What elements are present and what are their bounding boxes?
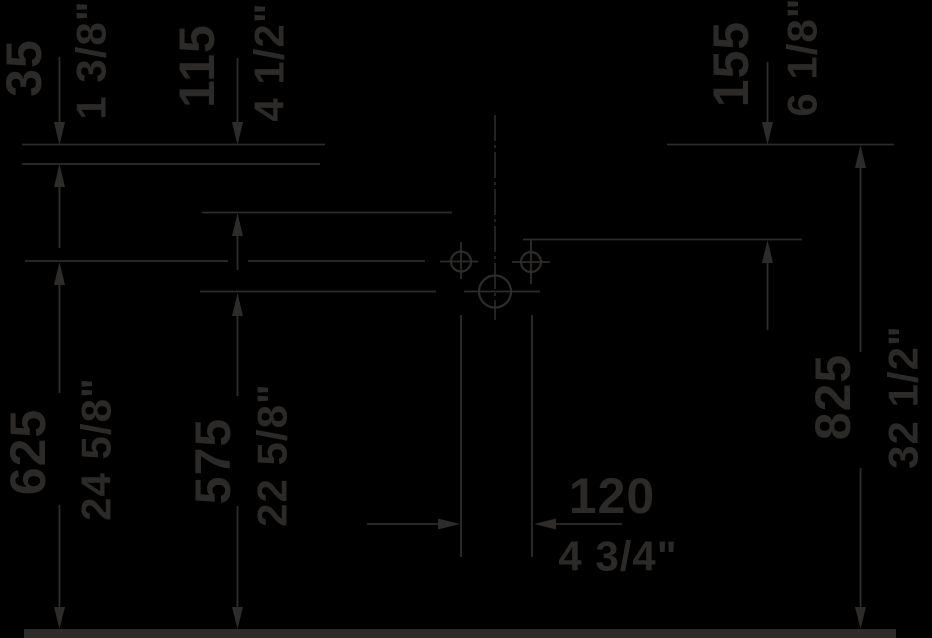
dimension-label-mm: 625: [0, 409, 56, 495]
dimension-label-mm: 120: [569, 468, 655, 524]
dimension-label-inch: 22 5/8": [249, 383, 296, 527]
arrowhead-down-icon: [54, 607, 65, 629]
arrowhead-down-icon: [232, 607, 243, 629]
washbasin-dimension-diagram: 35 1 3/8" 115 4 1/2" 155 6 1/8" 625 24 5…: [0, 0, 932, 638]
arrowhead-left-icon: [534, 519, 556, 530]
dimension-label-inch: 24 5/8": [73, 377, 120, 521]
arrowhead-up-icon: [232, 213, 243, 236]
dimension-label-mm: 115: [169, 24, 225, 108]
dimension-label-mm: 575: [185, 418, 241, 504]
dimension-115: 115 4 1/2": [169, 2, 293, 270]
dimension-label-inch: 6 1/8": [779, 0, 826, 117]
floor-line: [24, 629, 896, 638]
arrowhead-up-icon: [762, 240, 773, 263]
dimension-120: 120 4 3/4": [367, 468, 678, 580]
arrowhead-down-icon: [762, 122, 773, 145]
dimension-label-inch: 4 3/4": [558, 533, 677, 580]
dimension-label-inch: 32 1/2": [880, 325, 927, 469]
dimension-155: 155 6 1/8": [703, 0, 826, 330]
dimension-label-inch: 1 3/8": [68, 0, 115, 119]
arrowhead-down-icon: [232, 122, 243, 145]
arrowhead-up-icon: [855, 145, 866, 168]
dimension-label-mm: 155: [703, 21, 759, 107]
arrowhead-down-icon: [54, 122, 65, 145]
arrowhead-right-icon: [438, 519, 460, 530]
arrowhead-up-icon: [232, 293, 243, 316]
dimension-625: 625 24 5/8": [0, 262, 120, 629]
dimension-825: 825 32 1/2": [805, 145, 927, 629]
dimension-label-mm: 825: [805, 354, 861, 440]
arrowhead-up-icon: [54, 164, 65, 187]
dimension-label-inch: 4 1/2": [246, 2, 293, 121]
arrowhead-up-icon: [54, 262, 65, 285]
dimension-label-mm: 35: [0, 39, 52, 97]
fixture-outline: [22, 115, 896, 638]
dimension-575: 575 22 5/8": [185, 293, 296, 629]
arrowhead-down-icon: [855, 607, 866, 629]
dimension-35: 35 1 3/8": [0, 0, 115, 248]
technical-drawing-canvas: 35 1 3/8" 115 4 1/2" 155 6 1/8" 625 24 5…: [0, 0, 932, 638]
